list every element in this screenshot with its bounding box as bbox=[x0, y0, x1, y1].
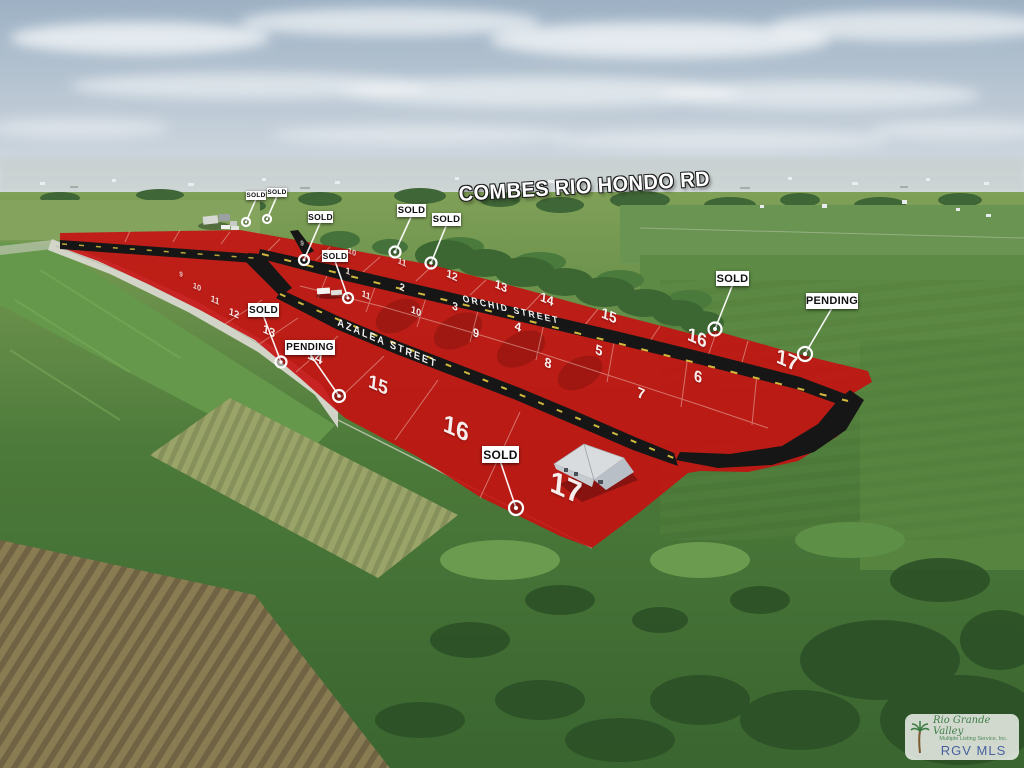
lot-number-mid-upper-2: 2 bbox=[399, 281, 405, 294]
status-sign-sold: SOLD bbox=[267, 188, 287, 197]
status-sign-sold: SOLD bbox=[322, 250, 348, 262]
sky bbox=[0, 0, 1024, 192]
aerial-lot-map-photo: COMBES RIO HONDO RD ORCHID STREET AZALEA… bbox=[0, 0, 1024, 768]
lot-number-mid-lower-8: 8 bbox=[544, 354, 552, 372]
lot-number-mid-upper-6: 6 bbox=[693, 367, 703, 389]
mls-rgv-label: RGV MLS bbox=[941, 744, 1007, 758]
lot-number-mid-upper-3: 3 bbox=[452, 300, 459, 314]
mls-watermark: Rio Grande Valley Multiple Listing Servi… bbox=[905, 714, 1019, 760]
status-sign-sold: SOLD bbox=[716, 271, 749, 286]
status-sign-sold: SOLD bbox=[248, 303, 279, 317]
status-sign-sold: SOLD bbox=[246, 191, 266, 200]
terrain-graphic bbox=[0, 0, 1024, 768]
mls-text: Rio Grande Valley Multiple Listing Servi… bbox=[933, 716, 1014, 757]
status-sign-sold: SOLD bbox=[397, 204, 426, 217]
palm-tree-icon bbox=[910, 720, 930, 754]
status-sign-sold: SOLD bbox=[308, 211, 333, 223]
lot-number-north-9: 9 bbox=[300, 240, 304, 249]
status-sign-sold: SOLD bbox=[432, 213, 461, 226]
lot-number-mid-lower-9: 9 bbox=[472, 325, 480, 342]
lot-number-mid-upper-4: 4 bbox=[514, 319, 522, 336]
lot-number-mid-upper-5: 5 bbox=[595, 340, 604, 359]
mls-brand-name: Rio Grande Valley bbox=[933, 716, 1014, 737]
lot-number-south-9: 9 bbox=[179, 271, 183, 280]
status-sign-pending: PENDING bbox=[285, 340, 335, 355]
status-sign-sold: SOLD bbox=[482, 446, 519, 463]
status-sign-pending: PENDING bbox=[806, 293, 858, 309]
